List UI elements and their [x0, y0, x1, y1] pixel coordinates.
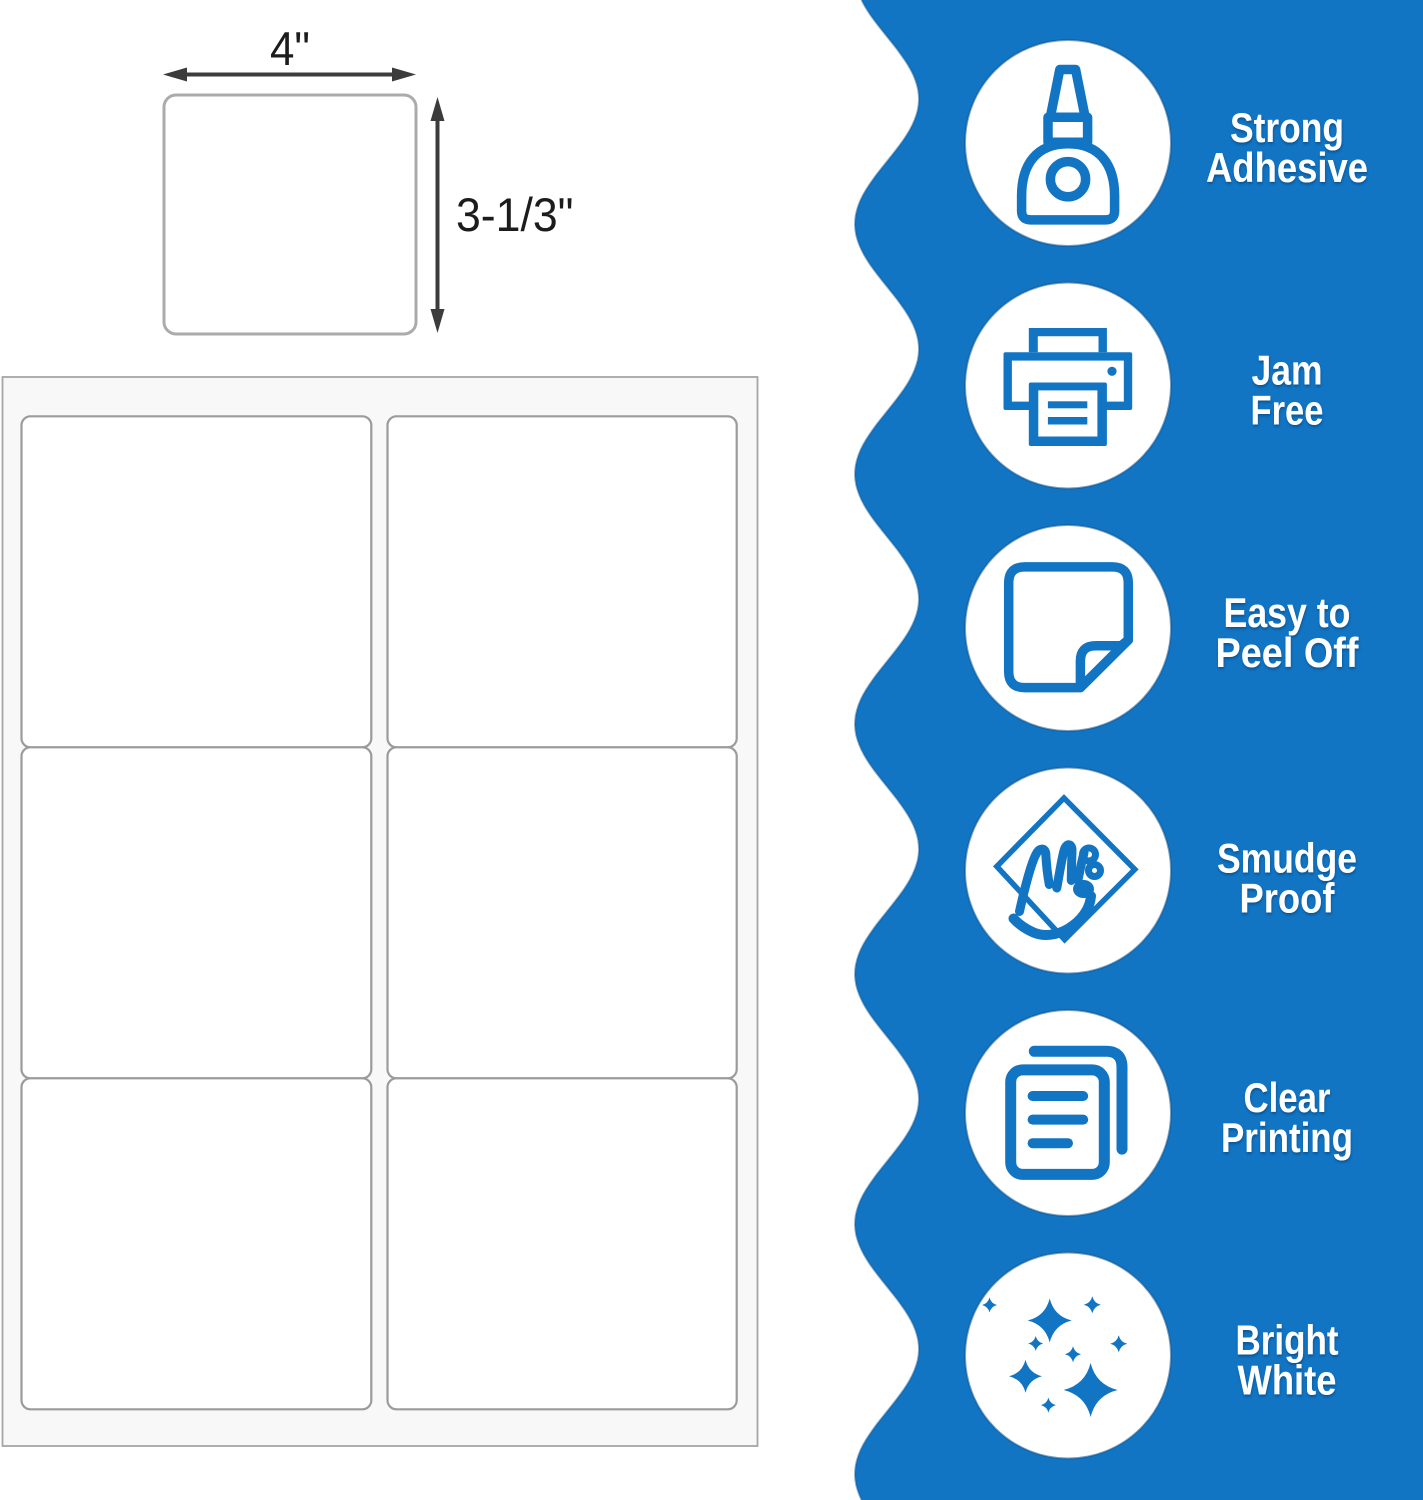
svg-text:Proof: Proof [1240, 875, 1336, 922]
svg-text:Adhesive: Adhesive [1206, 144, 1368, 191]
svg-text:3-1/3": 3-1/3" [456, 188, 574, 241]
svg-text:Free: Free [1251, 387, 1324, 434]
svg-text:Peel Off: Peel Off [1216, 629, 1360, 676]
svg-text:Printing: Printing [1221, 1114, 1353, 1161]
svg-text:White: White [1238, 1357, 1337, 1404]
svg-text:4": 4" [270, 22, 310, 75]
